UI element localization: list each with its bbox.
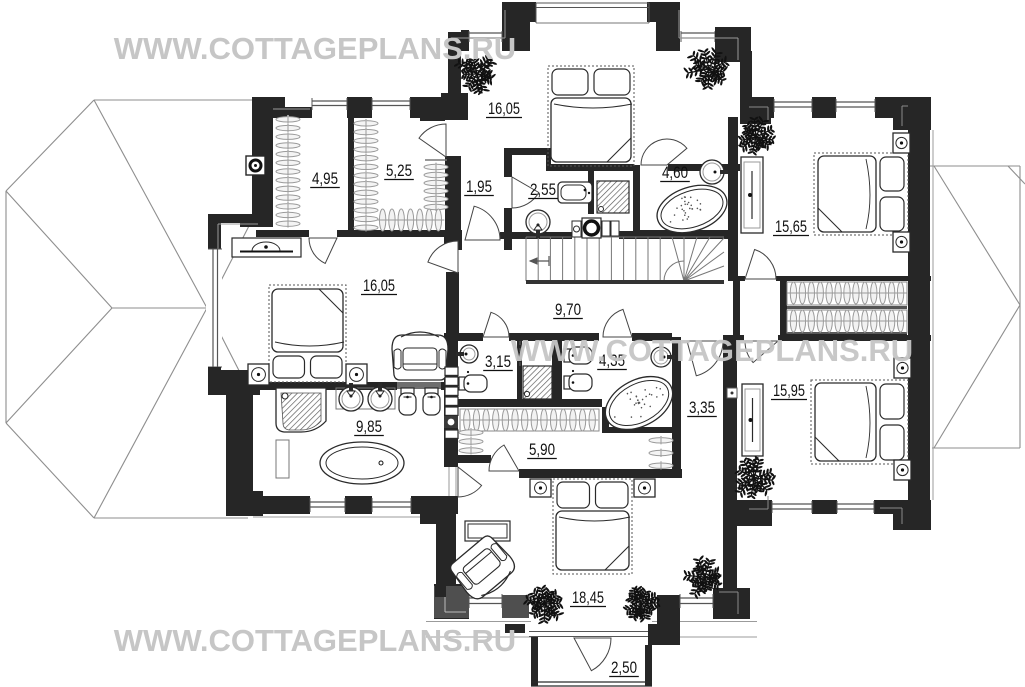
svg-text:16,05: 16,05 <box>363 277 395 295</box>
svg-text:18,45: 18,45 <box>572 589 604 607</box>
svg-text:3,15: 3,15 <box>485 353 511 371</box>
svg-text:5,25: 5,25 <box>386 162 412 180</box>
svg-text:WWW.COTTAGEPLANS.RU: WWW.COTTAGEPLANS.RU <box>511 333 913 368</box>
svg-text:9,85: 9,85 <box>356 418 382 436</box>
svg-text:9,70: 9,70 <box>555 301 581 319</box>
svg-text:WWW.COTTAGEPLANS.RU: WWW.COTTAGEPLANS.RU <box>114 623 516 658</box>
svg-text:15,65: 15,65 <box>775 218 807 236</box>
svg-text:4,60: 4,60 <box>662 164 688 182</box>
svg-text:5,90: 5,90 <box>529 441 555 459</box>
svg-text:WWW.COTTAGEPLANS.RU: WWW.COTTAGEPLANS.RU <box>114 31 516 66</box>
svg-text:3,35: 3,35 <box>689 399 715 417</box>
svg-text:2,50: 2,50 <box>611 659 637 677</box>
svg-text:4,95: 4,95 <box>312 170 338 188</box>
svg-text:2,55: 2,55 <box>530 181 556 199</box>
svg-text:16,05: 16,05 <box>488 100 520 118</box>
svg-text:1,95: 1,95 <box>466 178 492 196</box>
svg-text:15,95: 15,95 <box>773 382 805 400</box>
